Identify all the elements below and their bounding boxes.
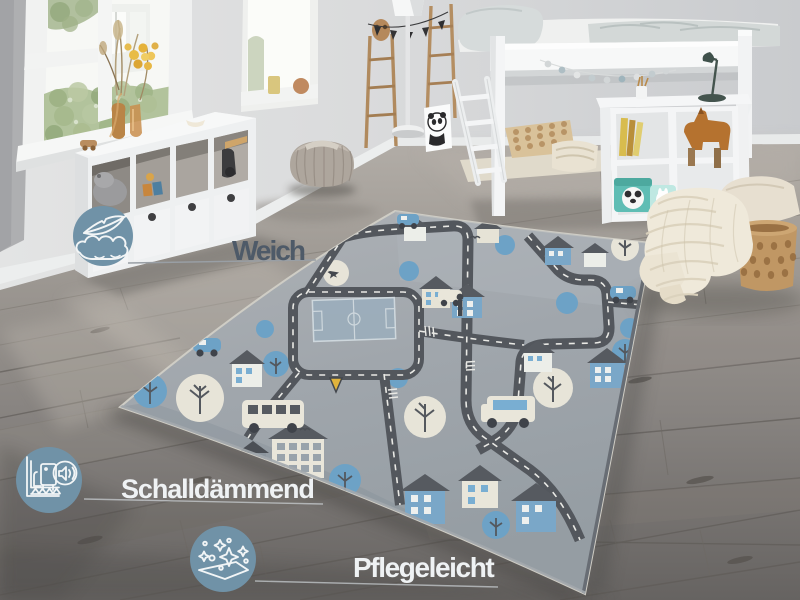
- svg-text:Schalldämmend: Schalldämmend: [121, 474, 314, 504]
- svg-text:Weich: Weich: [232, 235, 305, 266]
- svg-text:Pflegeleicht: Pflegeleicht: [353, 552, 494, 583]
